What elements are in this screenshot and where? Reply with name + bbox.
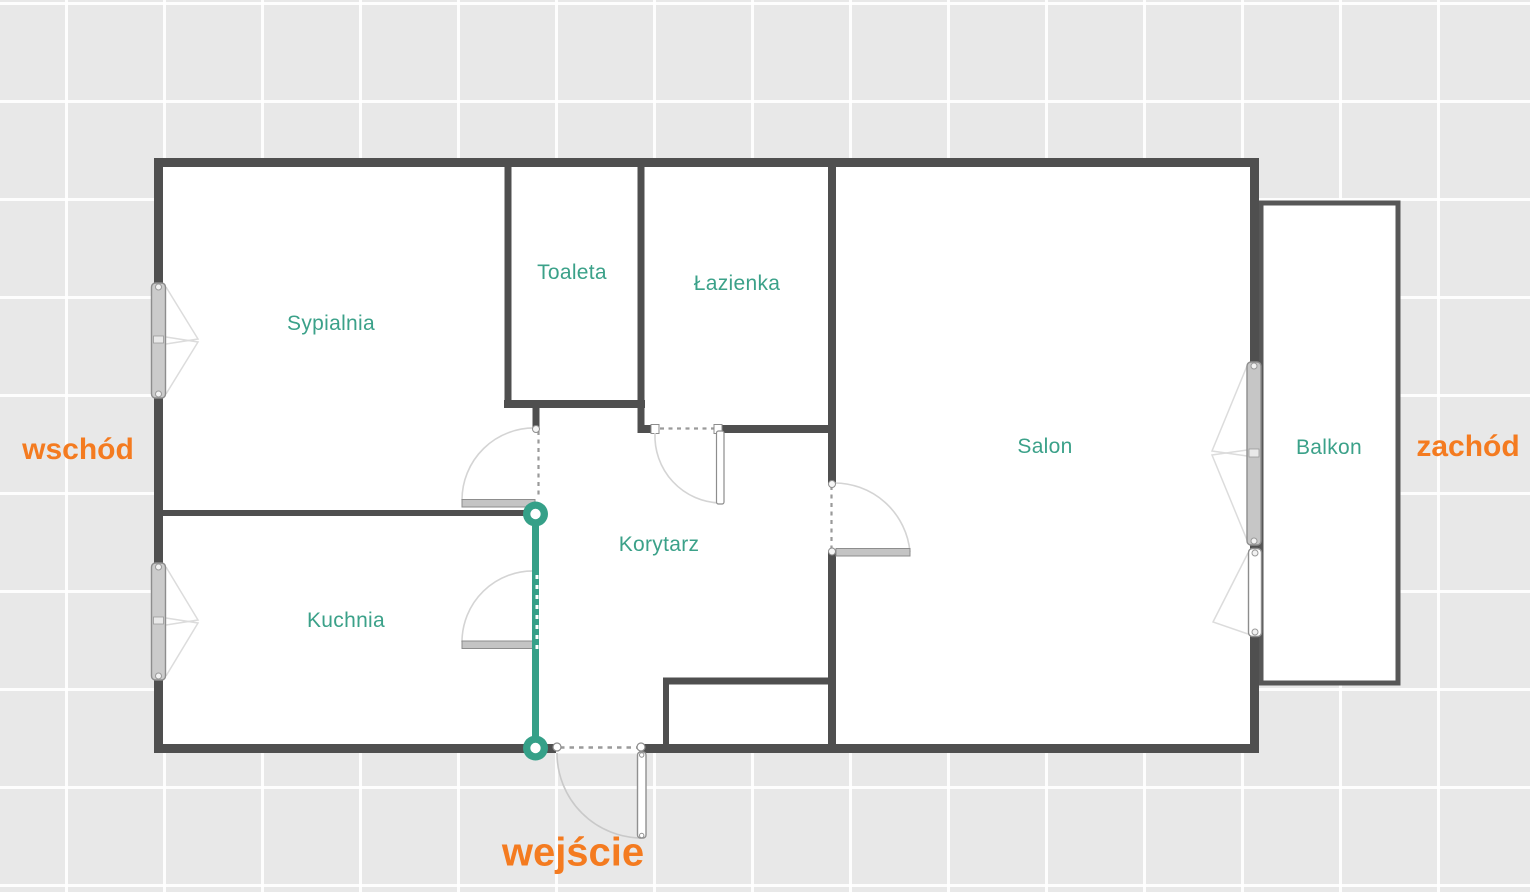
door-swing-arc	[557, 753, 642, 838]
wall-endpoint-handle-top[interactable]	[523, 502, 548, 527]
entrance-label: wejście	[502, 831, 644, 876]
door-jamb-cap	[829, 481, 836, 488]
window-cap	[1251, 363, 1257, 369]
room-label-toaleta: Toaleta	[537, 261, 607, 285]
room-label-lazienka: Łazienka	[694, 272, 780, 296]
door-jamb-cap	[553, 743, 561, 751]
direction-label-west: zachód	[1416, 430, 1519, 464]
window-cap	[1251, 538, 1257, 544]
door-leaf	[1249, 549, 1262, 637]
door-leaf	[462, 641, 535, 649]
entrance-door	[553, 743, 646, 838]
door-jamb	[651, 425, 659, 434]
door-cap	[1252, 629, 1258, 635]
room-label-sypialnia: Sypialnia	[287, 312, 375, 336]
room-label-salon: Salon	[1017, 435, 1072, 459]
floor-plan: Sypialnia Toaleta Łazienka Salon Balkon …	[0, 0, 1530, 892]
door-jamb-cap	[533, 426, 540, 433]
door-leaf	[638, 752, 647, 838]
door-leaf-cap	[640, 753, 644, 757]
room-label-balkon: Balkon	[1296, 436, 1362, 460]
room-label-kuchnia: Kuchnia	[307, 609, 385, 633]
direction-label-east: wschód	[22, 433, 134, 467]
door-jamb-cap	[829, 548, 836, 555]
door-leaf	[462, 500, 535, 508]
door-leaf	[717, 431, 725, 504]
door-jamb-cap	[637, 743, 645, 751]
wall-endpoint-handle-bottom[interactable]	[523, 736, 548, 761]
handle-hole	[530, 509, 540, 519]
window-cap	[156, 284, 162, 290]
window-cap	[156, 564, 162, 570]
window-mid-tick	[1249, 449, 1259, 457]
window-mid-tick	[154, 336, 164, 343]
window-cap	[156, 391, 162, 397]
door-leaf	[836, 549, 910, 557]
window-mid-tick	[154, 617, 164, 624]
room-label-korytarz: Korytarz	[619, 533, 700, 557]
handle-hole	[530, 743, 540, 753]
outer-walls	[159, 163, 1255, 749]
door-cap	[1252, 550, 1258, 556]
window-cap	[156, 673, 162, 679]
